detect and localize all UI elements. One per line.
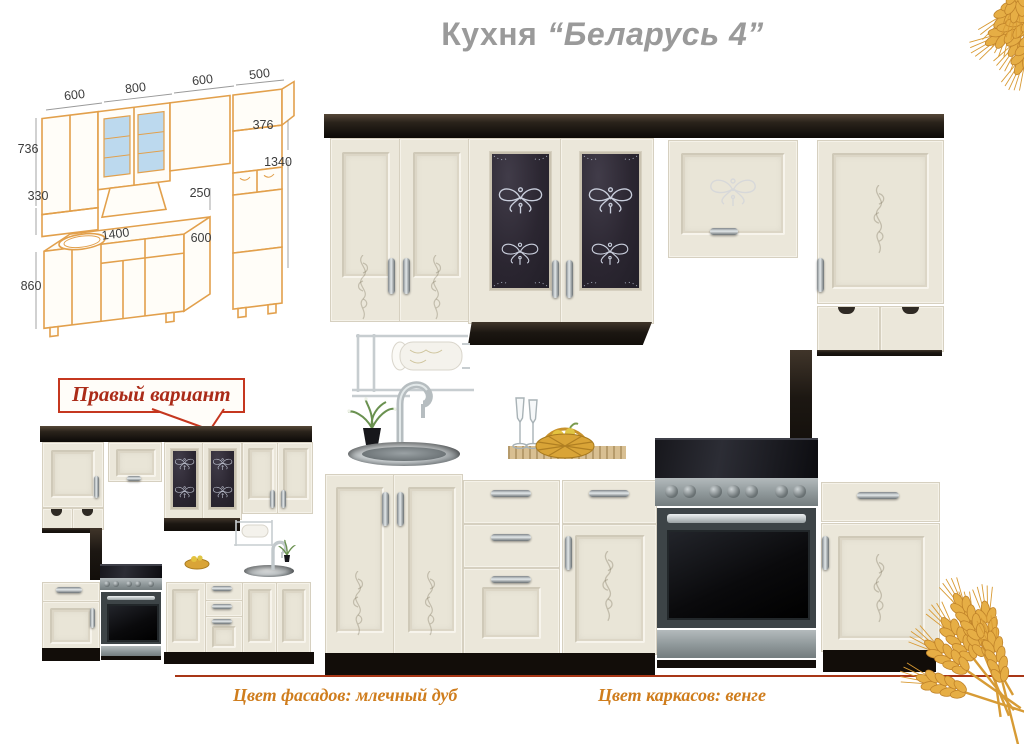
stove-knob bbox=[709, 485, 722, 498]
door-handle bbox=[382, 492, 389, 526]
door-panel bbox=[248, 589, 272, 643]
stove-knob bbox=[727, 485, 740, 498]
dim-label: 736 bbox=[18, 142, 39, 156]
oven-door bbox=[101, 592, 161, 644]
door-panel bbox=[172, 589, 200, 643]
kitchen-photo bbox=[322, 98, 944, 680]
right-variant-photo bbox=[36, 420, 320, 672]
embossed-ornament-icon bbox=[868, 185, 892, 255]
drawer-handle bbox=[491, 534, 531, 541]
door-panel bbox=[116, 449, 156, 477]
glass-ornament-icon bbox=[490, 152, 551, 290]
base-cabinets bbox=[325, 474, 655, 680]
open-shelf bbox=[468, 322, 652, 345]
door-handle bbox=[710, 228, 738, 235]
dim-label: 376 bbox=[253, 118, 274, 132]
stove-knob bbox=[104, 581, 110, 587]
plant bbox=[278, 538, 296, 564]
drawer-handle bbox=[589, 490, 629, 497]
door-handle bbox=[397, 492, 404, 526]
dim-label: 800 bbox=[124, 80, 146, 96]
cooktop bbox=[655, 438, 818, 478]
dim-label: 600 bbox=[191, 231, 212, 245]
door-handle bbox=[552, 260, 559, 298]
drawer-panel bbox=[212, 626, 236, 648]
cabinet-door bbox=[42, 442, 104, 508]
plinth bbox=[325, 653, 655, 677]
cabinet-door bbox=[562, 524, 657, 655]
caption-frame-color: Цвет каркасов: венге bbox=[598, 685, 766, 706]
door-panel bbox=[283, 448, 309, 500]
drawer-handle bbox=[857, 492, 899, 499]
drawer-handle bbox=[56, 587, 82, 593]
embossed-ornament-icon bbox=[703, 175, 763, 209]
door-panel bbox=[50, 608, 92, 644]
stove-knob bbox=[135, 581, 141, 587]
door-handle bbox=[565, 536, 572, 570]
fruit-basket bbox=[184, 552, 210, 570]
dim-label: 600 bbox=[191, 72, 213, 88]
glass-ornament-icon bbox=[209, 449, 236, 509]
oven-window bbox=[667, 530, 810, 620]
sink bbox=[348, 442, 460, 466]
stove-knob bbox=[665, 485, 678, 498]
dim-label: 1340 bbox=[264, 155, 292, 169]
glass-cabinet-door bbox=[468, 138, 562, 324]
towel-rack bbox=[232, 516, 276, 550]
plinth bbox=[164, 652, 314, 664]
oven-handle bbox=[667, 514, 806, 523]
embossed-ornament-icon bbox=[426, 255, 448, 321]
open-shelf bbox=[164, 518, 240, 531]
stove-knob bbox=[745, 485, 758, 498]
embossed-ornament-icon bbox=[353, 255, 375, 321]
sink-bowl bbox=[362, 447, 446, 461]
cabinet-door bbox=[166, 582, 206, 654]
door-panel bbox=[51, 450, 95, 498]
drawer-front bbox=[463, 524, 560, 568]
stove-knob bbox=[113, 581, 119, 587]
dim-label: 600 bbox=[63, 87, 85, 103]
embossed-ornament-icon bbox=[420, 571, 442, 637]
glass-cabinet-door bbox=[202, 442, 242, 520]
wheat-decoration-bottom-icon bbox=[893, 576, 1024, 744]
stove-knob bbox=[126, 581, 132, 587]
glass-pane bbox=[489, 151, 552, 291]
oven-window bbox=[107, 604, 159, 642]
fruit-basket bbox=[534, 418, 596, 460]
glass-cabinet-door bbox=[560, 138, 654, 324]
oven-handle bbox=[107, 596, 155, 600]
stove-base bbox=[101, 656, 161, 660]
dim-label: 500 bbox=[248, 66, 270, 82]
countertop bbox=[811, 453, 944, 477]
glass-ornament-icon bbox=[580, 152, 641, 290]
embossed-ornament-icon bbox=[868, 554, 892, 624]
door-handle bbox=[270, 490, 275, 508]
catalog-page: Кухня“Беларусь 4” bbox=[0, 0, 1024, 744]
title-prefix: Кухня bbox=[441, 16, 537, 52]
plant bbox=[344, 394, 400, 446]
door-handle bbox=[94, 476, 99, 498]
title-model-name: “Беларусь 4” bbox=[547, 16, 764, 52]
stove-drawer bbox=[101, 646, 161, 656]
stove-knob bbox=[148, 581, 154, 587]
drawer-handle bbox=[212, 604, 232, 609]
drawer-front bbox=[821, 482, 940, 522]
glass-pane bbox=[170, 448, 199, 510]
stove-knob bbox=[793, 485, 806, 498]
door-handle bbox=[817, 258, 824, 292]
glass-pane bbox=[579, 151, 642, 291]
glass-ornament-icon bbox=[171, 449, 198, 509]
stove-drawer bbox=[657, 630, 816, 658]
door-handle bbox=[127, 476, 141, 481]
drawer-handle bbox=[491, 490, 531, 497]
carcass-rail bbox=[817, 350, 942, 356]
stove bbox=[655, 438, 818, 670]
cornice bbox=[324, 114, 944, 138]
dim-label: 250 bbox=[190, 186, 211, 200]
door-handle bbox=[388, 258, 395, 294]
stove-knob bbox=[683, 485, 696, 498]
stove bbox=[100, 564, 162, 660]
glass-pane bbox=[208, 448, 237, 510]
countertop bbox=[40, 566, 104, 581]
door-handle bbox=[566, 260, 573, 298]
drawer-handle bbox=[212, 586, 232, 591]
door-handle bbox=[403, 258, 410, 294]
door-handle bbox=[822, 536, 829, 570]
wheat-decoration-top-icon bbox=[886, 0, 1024, 160]
drawer-handle bbox=[491, 576, 531, 583]
stove-control-panel bbox=[100, 578, 162, 590]
caption-facade-color: Цвет фасадов: млечный дуб bbox=[233, 685, 457, 706]
oven-door bbox=[657, 508, 816, 628]
drawer-panel bbox=[482, 587, 541, 639]
cabinet-door bbox=[817, 140, 944, 304]
embossed-ornament-icon bbox=[348, 571, 370, 637]
plinth bbox=[42, 648, 100, 661]
cornice bbox=[40, 426, 312, 442]
glass-cabinet-door bbox=[164, 442, 204, 520]
drawer-front bbox=[463, 480, 560, 524]
cabinet-door bbox=[276, 582, 311, 654]
cabinet-door bbox=[330, 138, 401, 322]
dim-label: 330 bbox=[28, 189, 49, 203]
drawer-front bbox=[205, 582, 243, 601]
dim-label: 860 bbox=[21, 279, 42, 293]
page-title: Кухня“Беларусь 4” bbox=[330, 16, 875, 53]
dimension-diagram: 600 800 600 500 736 330 376 1340 250 140… bbox=[14, 50, 324, 368]
cabinet-door bbox=[399, 138, 470, 322]
drawer-handle bbox=[212, 619, 232, 624]
flip-up-cabinet-door bbox=[668, 140, 798, 258]
door-handle bbox=[90, 608, 95, 628]
stove-control-panel bbox=[655, 478, 818, 506]
cabinet-door bbox=[242, 582, 277, 654]
embossed-ornament-icon bbox=[597, 551, 621, 623]
door-panel bbox=[282, 589, 306, 643]
variant-callout-label: Правый вариант bbox=[72, 382, 231, 406]
stove-knob bbox=[775, 485, 788, 498]
drawer-front bbox=[562, 480, 657, 524]
door-handle bbox=[281, 490, 286, 508]
stove-base bbox=[657, 660, 816, 668]
